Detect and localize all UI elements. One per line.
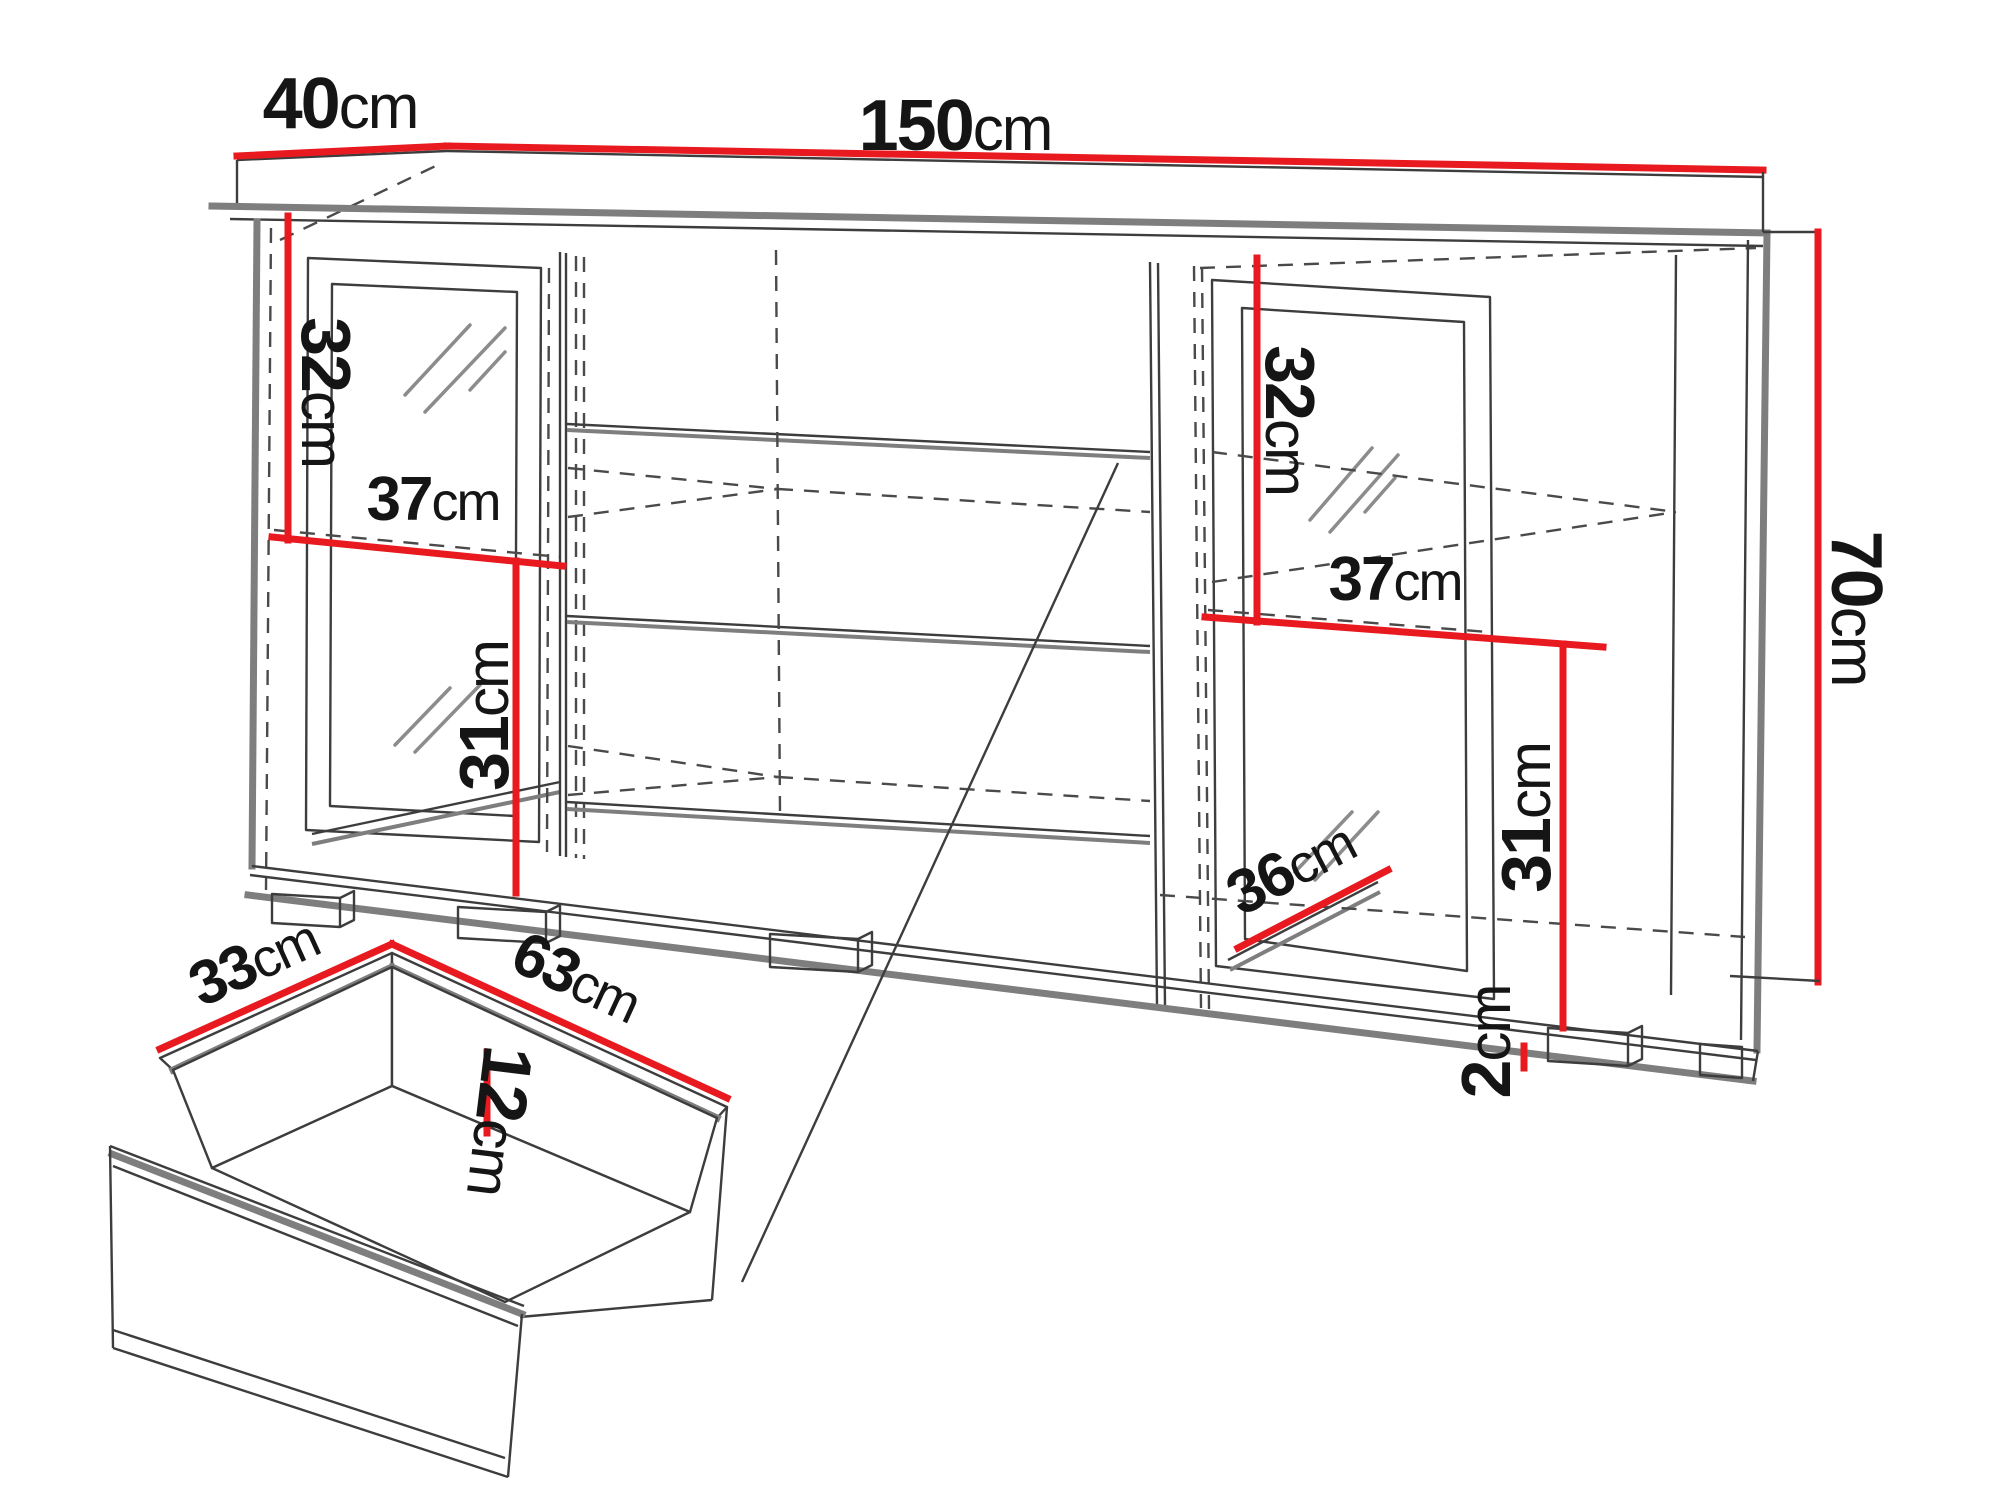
middle-open-section xyxy=(560,250,1209,1009)
top-front-edge xyxy=(212,206,1767,233)
drawer-leader-line xyxy=(742,463,1118,1282)
middle-hidden-centerline xyxy=(776,250,780,812)
dim-label-depth: 40cm xyxy=(263,64,418,144)
dim-line-width-150 xyxy=(447,146,1763,170)
dim-extension-line xyxy=(1730,976,1820,981)
dim-label-plinth: 2cm xyxy=(1447,986,1525,1099)
front-panel-bottom-edge xyxy=(113,1348,508,1477)
base-right-cap xyxy=(1753,1051,1758,1081)
dim-label-right-upper: 32cm xyxy=(1251,345,1329,495)
front-panel-right-edge xyxy=(508,1314,522,1477)
dim-line-right-37 xyxy=(1205,617,1603,647)
shelf-2-top-edge xyxy=(567,616,1150,646)
left-door-hidden-edge xyxy=(547,268,549,852)
left-outer-edge xyxy=(252,222,257,866)
shelf-1-top-edge xyxy=(567,424,1150,452)
glass-shine-icon xyxy=(1295,448,1398,880)
drawer-right-wall-outer-edge xyxy=(712,1107,727,1300)
dim-label-width: 150cm xyxy=(859,86,1052,166)
dim-label-right-lower: 31cm xyxy=(1487,743,1565,893)
front-panel-bottom-seam xyxy=(113,1330,505,1458)
left-inner-hidden-edge xyxy=(266,228,271,890)
right-inner-edge xyxy=(1741,240,1748,1040)
dim-label-left-upper: 32cm xyxy=(287,317,365,467)
drawer-right-wall-bottom-edge xyxy=(520,1300,712,1317)
dim-line-depth-40 xyxy=(237,146,447,156)
right-hidden-top-depth xyxy=(1200,248,1756,268)
right-interior-back-corner xyxy=(1671,255,1676,995)
middle-divider-right-a xyxy=(1150,262,1157,1006)
dim-label-left-lower: 31cm xyxy=(445,641,523,791)
furniture-dimension-diagram: 40cm 150cm 70cm 32cm 37cm 31cm 32cm 37cm… xyxy=(0,0,2000,1500)
dim-label-right-width: 37cm xyxy=(1329,545,1462,614)
dim-label-height: 70cm xyxy=(1816,531,1896,686)
shelf-1-depth-hidden-a xyxy=(568,468,778,489)
cabinet-left-side xyxy=(252,222,271,890)
right-divider-hidden-b xyxy=(1202,267,1209,1009)
front-panel-left-edge xyxy=(110,1146,113,1348)
shelf-1-depth-hidden-b xyxy=(568,489,778,517)
dim-label-left-width: 37cm xyxy=(367,465,500,534)
middle-bottom-front-edge xyxy=(567,809,1150,843)
shelf-1-front-edge xyxy=(567,430,1150,458)
middle-bottom-top-edge xyxy=(567,802,1150,836)
bottom-depth-hidden-b xyxy=(568,777,778,795)
diagram-canvas: 40cm 150cm 70cm 32cm 37cm 31cm 32cm 37cm… xyxy=(0,0,2000,1500)
right-outer-edge xyxy=(1757,233,1767,1050)
shelf-2-front-edge xyxy=(567,622,1150,652)
shelf-1-back-hidden xyxy=(778,489,1150,512)
top-hidden-back-edge xyxy=(280,162,444,240)
cabinet xyxy=(212,151,1767,1081)
bottom-depth-hidden-a xyxy=(568,746,778,777)
